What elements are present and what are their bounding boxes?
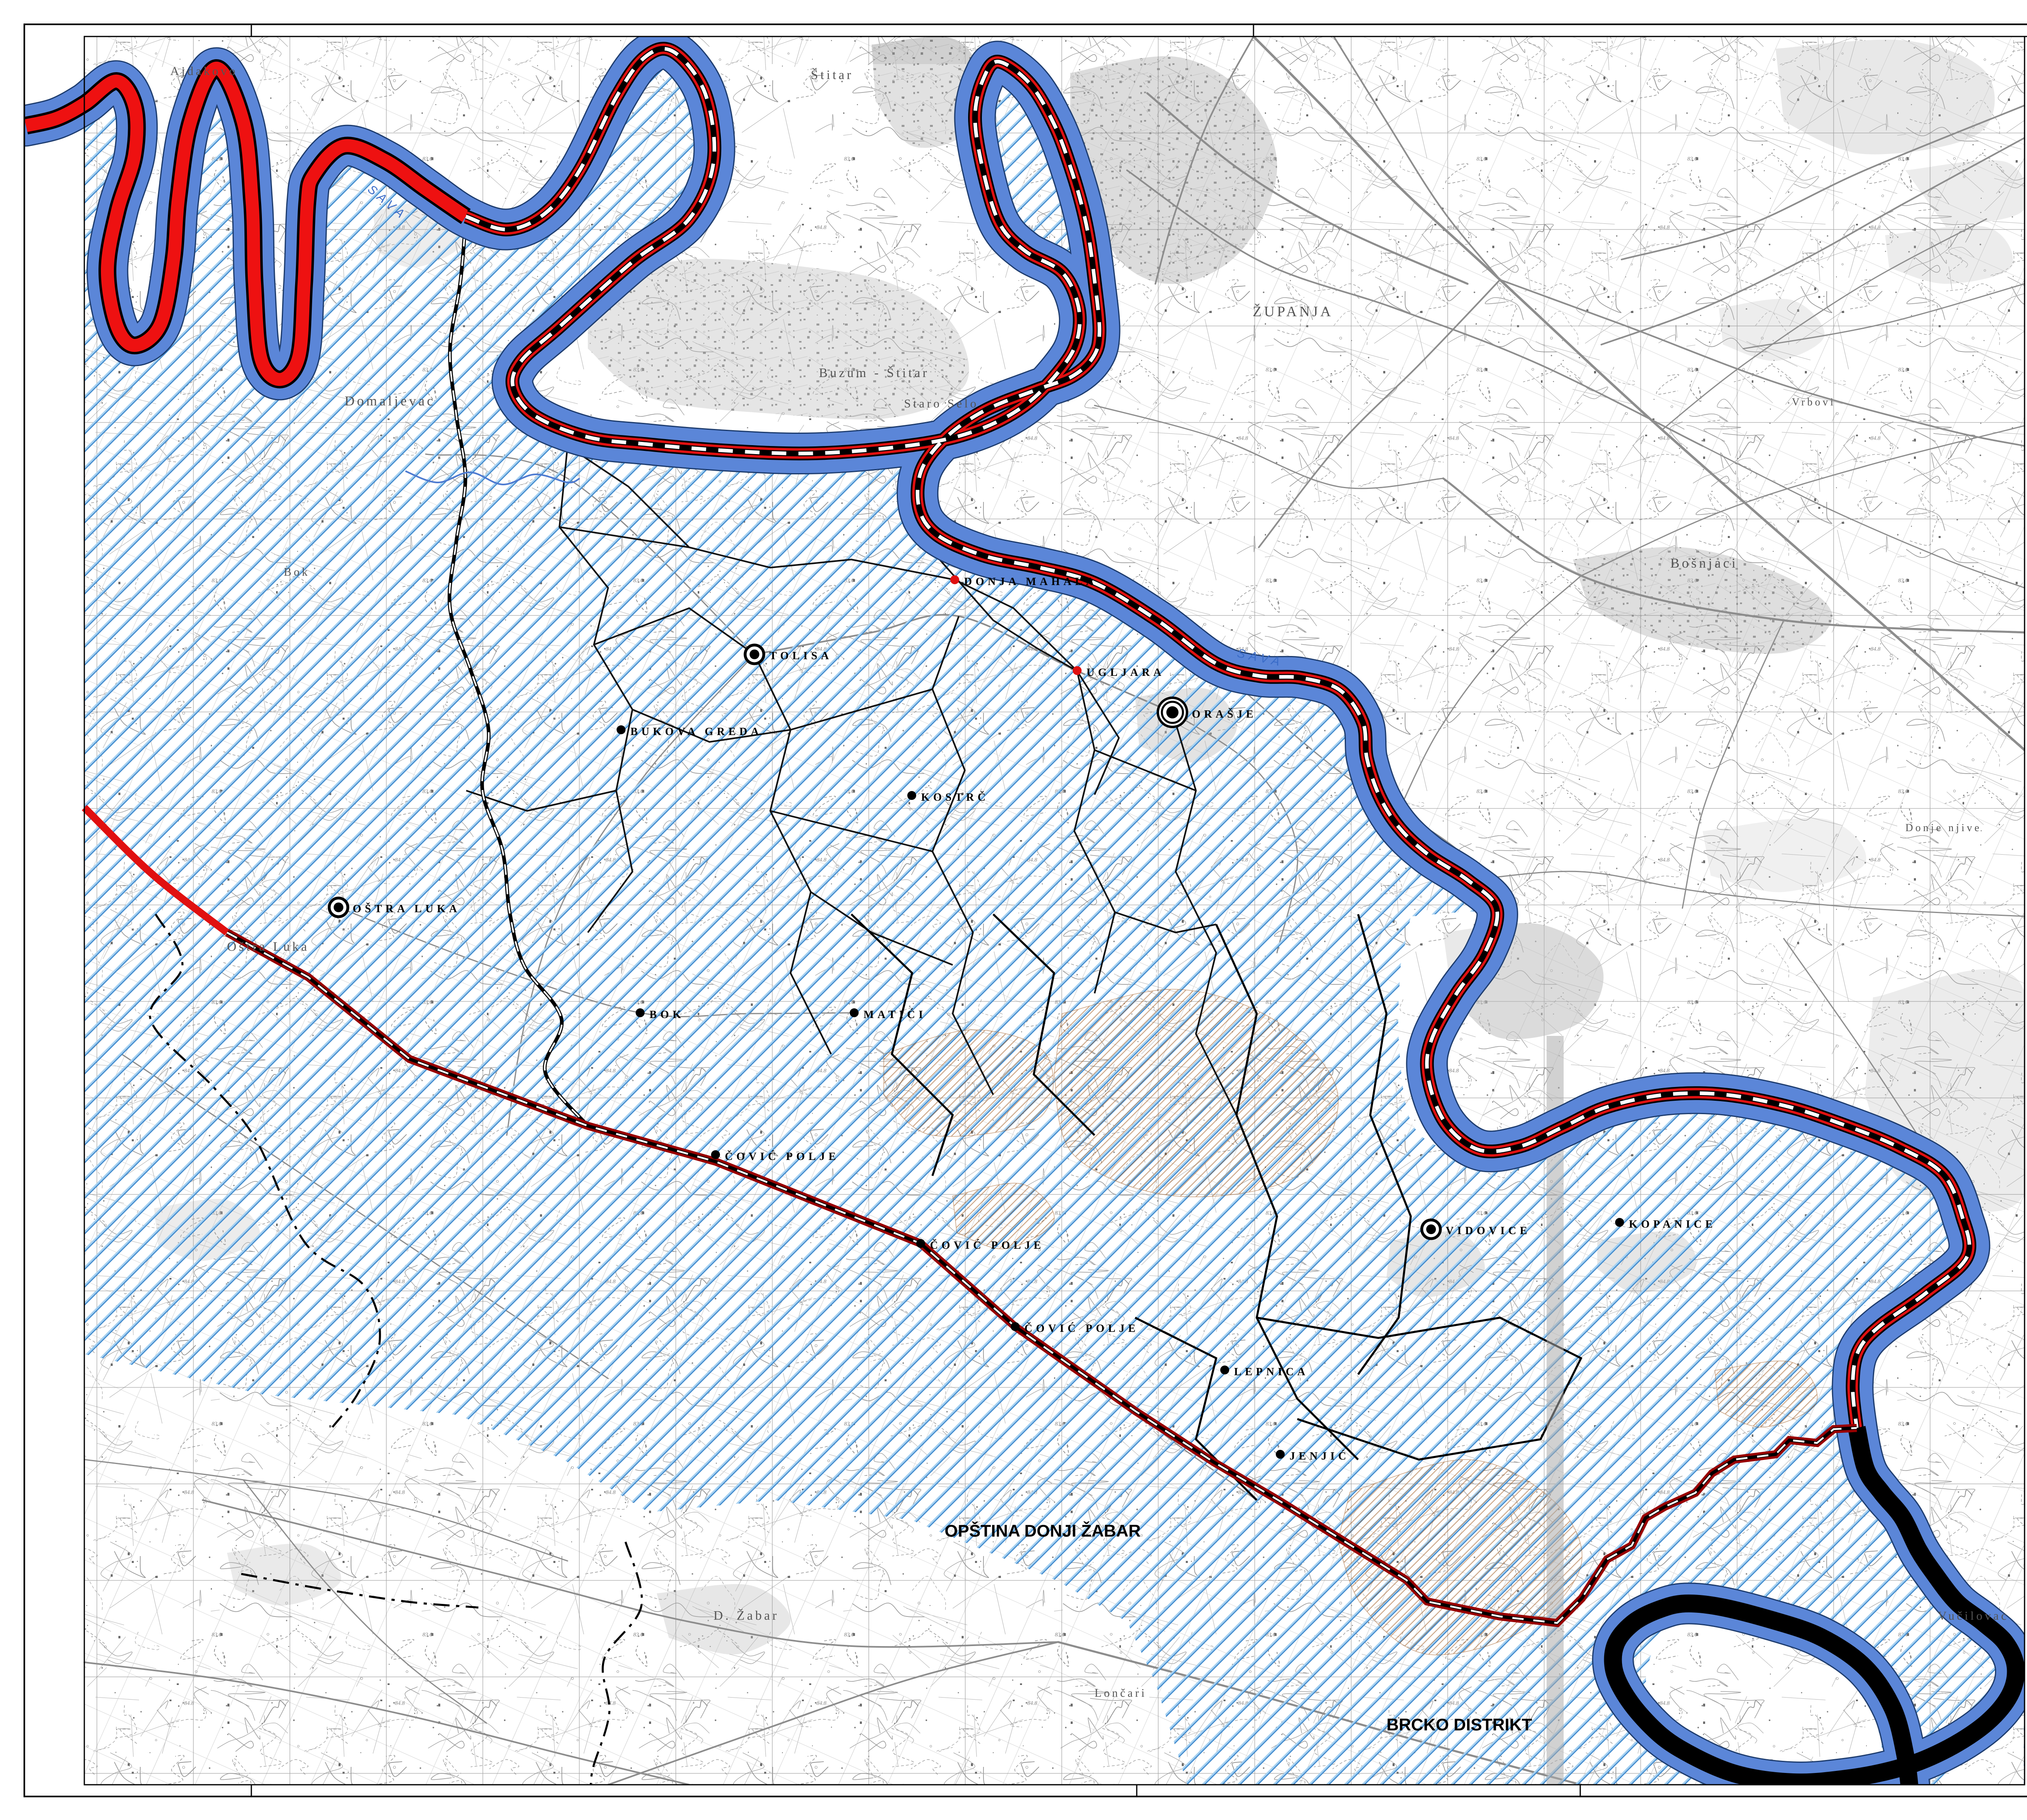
- svg-text:Bošnjaci: Bošnjaci: [1670, 556, 1738, 571]
- svg-text:KOPANICE: KOPANICE: [1629, 1218, 1716, 1230]
- svg-text:Bok: Bok: [284, 566, 310, 579]
- svg-text:OŠTRA LUKA: OŠTRA LUKA: [353, 902, 461, 915]
- svg-text:Vrbovi: Vrbovi: [1792, 396, 1836, 408]
- svg-text:ČOVIĆ POLJE: ČOVIĆ POLJE: [725, 1150, 840, 1162]
- svg-text:ČOVIĆ POLJE: ČOVIĆ POLJE: [1024, 1322, 1139, 1334]
- svg-text:D. Žabar: D. Žabar: [714, 1608, 779, 1623]
- svg-text:KOSTRČ: KOSTRČ: [921, 791, 989, 803]
- svg-text:ŽUPANJA: ŽUPANJA: [1253, 303, 1333, 319]
- svg-text:Vučilovac: Vučilovac: [1938, 1609, 2009, 1623]
- svg-text:TOLISA: TOLISA: [769, 650, 833, 662]
- svg-text:VIDOVICE: VIDOVICE: [1446, 1224, 1531, 1237]
- svg-text:JENJIĆ: JENJIĆ: [1290, 1450, 1350, 1462]
- svg-text:MATIĆI: MATIĆI: [864, 1008, 927, 1020]
- svg-text:Oštra Luka: Oštra Luka: [227, 939, 309, 954]
- svg-text:UGLJARA: UGLJARA: [1086, 666, 1165, 678]
- svg-text:Ajdakovo: Ajdakovo: [170, 64, 238, 78]
- svg-text:BUKOVA GREDA: BUKOVA GREDA: [630, 725, 763, 737]
- svg-text:LEPNICA: LEPNICA: [1234, 1366, 1309, 1378]
- svg-text:BRCKO DISTRIKT: BRCKO DISTRIKT: [1386, 1715, 1532, 1734]
- svg-text:Staro Selo: Staro Selo: [904, 397, 979, 410]
- svg-text:BOK: BOK: [649, 1008, 685, 1020]
- svg-text:ČOVIĆ POLJE: ČOVIĆ POLJE: [930, 1239, 1045, 1251]
- svg-text:Donje njive: Donje njive: [1905, 822, 1982, 834]
- svg-text:Buzum - Štitar: Buzum - Štitar: [819, 365, 929, 380]
- svg-text:OPŠTINA DONJI ŽABAR: OPŠTINA DONJI ŽABAR: [945, 1521, 1141, 1540]
- svg-text:Lončari: Lončari: [1095, 1687, 1147, 1700]
- svg-text:Domaljevac: Domaljevac: [345, 394, 435, 409]
- svg-text:Štitar: Štitar: [811, 67, 853, 82]
- svg-text:DONJA MAHALA: DONJA MAHALA: [964, 575, 1097, 587]
- svg-text:ORAŠJE: ORAŠJE: [1192, 708, 1257, 720]
